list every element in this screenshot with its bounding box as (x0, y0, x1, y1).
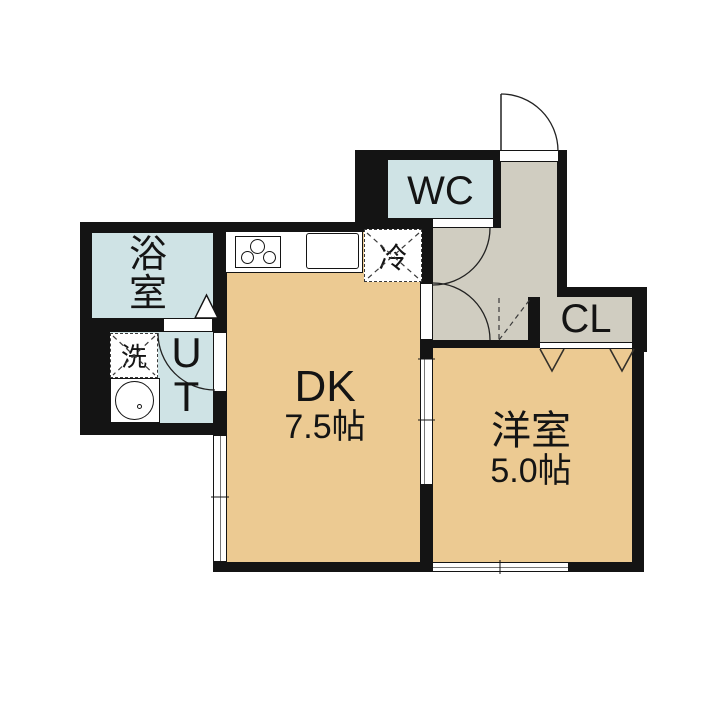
entrance-door-icon (501, 94, 558, 151)
western-room-label-group: 洋室 5.0帖 (433, 410, 629, 490)
utility-label: UT (168, 331, 205, 419)
bath-door-triangle-icon (195, 295, 218, 318)
dk-room-label: DK 7.5帖 (230, 365, 420, 445)
shoe-cabinet-marks (499, 298, 531, 340)
wc-label: WC (388, 170, 493, 212)
plan-symbols-overlay (0, 0, 720, 720)
wc-door-swing-icon (433, 228, 490, 285)
bathroom-label: 浴室 (127, 236, 169, 314)
refrigerator-x-marks (367, 233, 419, 279)
closet-folding-door-marks (540, 349, 634, 371)
closet-label: CL (540, 298, 632, 340)
laundry-x-marks (113, 336, 155, 375)
dk-size: 7.5帖 (230, 409, 420, 445)
western-room-label: 洋室 (433, 410, 629, 452)
western-room-size: 5.0帖 (433, 452, 629, 490)
floor-plan: 冷 洗 (0, 0, 720, 720)
hall-door-swing-icon (433, 283, 490, 340)
dk-label: DK (230, 365, 420, 409)
